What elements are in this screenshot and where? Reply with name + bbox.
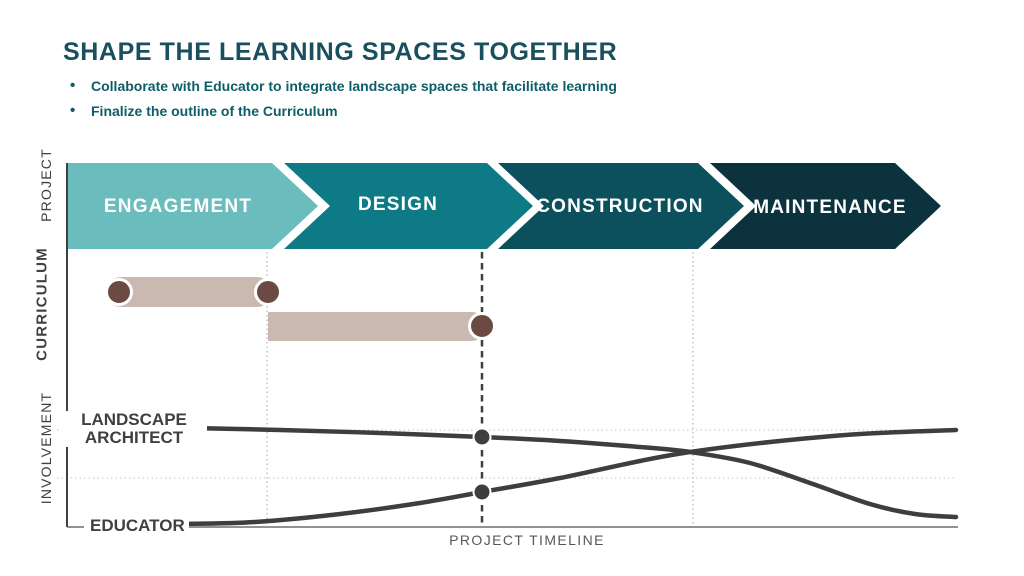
involvement-curve-landscape-architect	[190, 428, 956, 517]
diagram-svg	[0, 0, 1024, 576]
row-label-involvement: INVOLVEMENT	[38, 392, 54, 505]
curriculum-bar	[268, 312, 486, 341]
milestone-dot	[107, 280, 132, 305]
row-label-curriculum: CURRICULUM	[34, 247, 51, 361]
phase-label-design: DESIGN	[298, 194, 498, 216]
landscape-architect-label-line2: ARCHITECT	[61, 429, 207, 447]
phase-label-engagement: ENGAGEMENT	[78, 196, 278, 218]
milestone-dot	[256, 280, 281, 305]
landscape-architect-label-line1: LANDSCAPE	[61, 411, 207, 429]
slide: SHAPE THE LEARNING SPACES TOGETHER Colla…	[0, 0, 1024, 576]
educator-label: EDUCATOR	[86, 517, 189, 534]
milestone-dot	[470, 314, 495, 339]
involvement-curve-educator	[182, 430, 956, 524]
landscape-architect-label: LANDSCAPE ARCHITECT	[61, 411, 207, 447]
curve-marker-dot	[474, 429, 491, 446]
phase-label-construction: CONSTRUCTION	[520, 196, 720, 218]
row-label-project: PROJECT	[38, 148, 54, 222]
phase-label-maintenance: MAINTENANCE	[730, 197, 930, 219]
x-axis-title: PROJECT TIMELINE	[427, 532, 627, 548]
curve-marker-dot	[474, 484, 491, 501]
